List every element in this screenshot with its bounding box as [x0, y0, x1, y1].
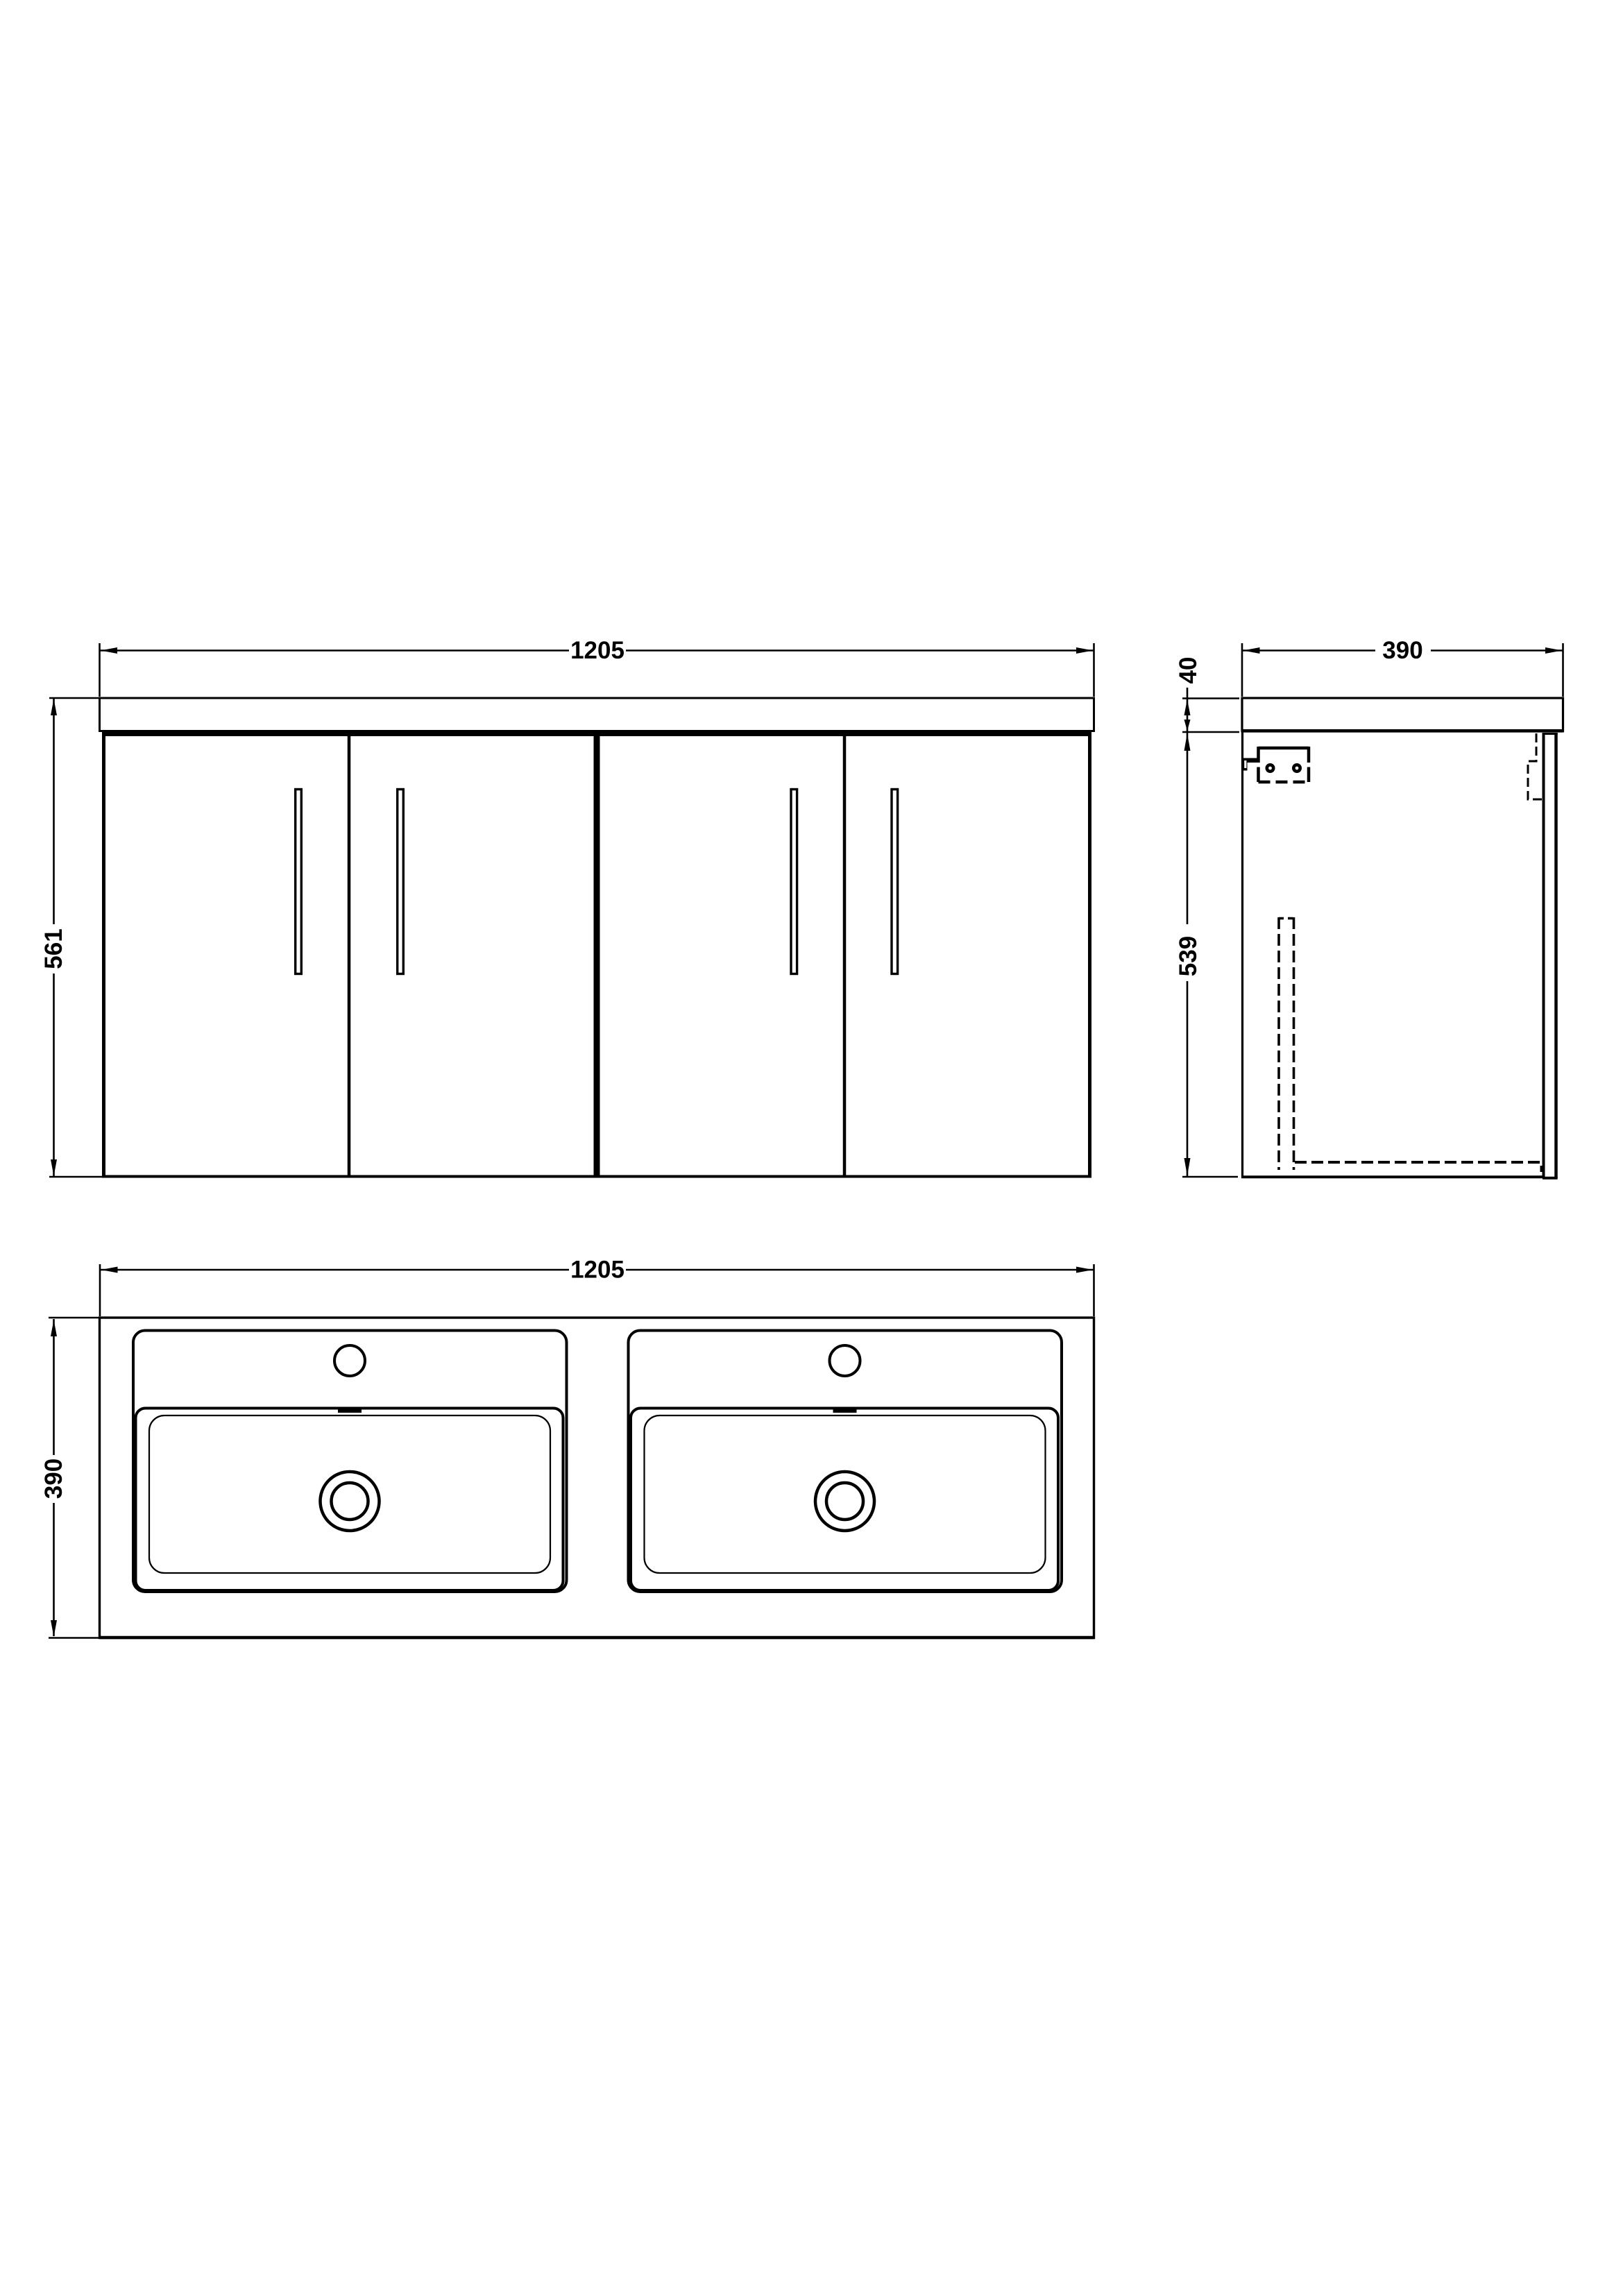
svg-text:390: 390	[1382, 637, 1422, 664]
svg-text:40: 40	[1175, 657, 1202, 684]
svg-text:561: 561	[40, 928, 67, 969]
svg-text:390: 390	[40, 1459, 67, 1499]
svg-text:1205: 1205	[570, 637, 624, 664]
svg-text:1205: 1205	[570, 1257, 624, 1284]
svg-text:539: 539	[1175, 936, 1202, 976]
